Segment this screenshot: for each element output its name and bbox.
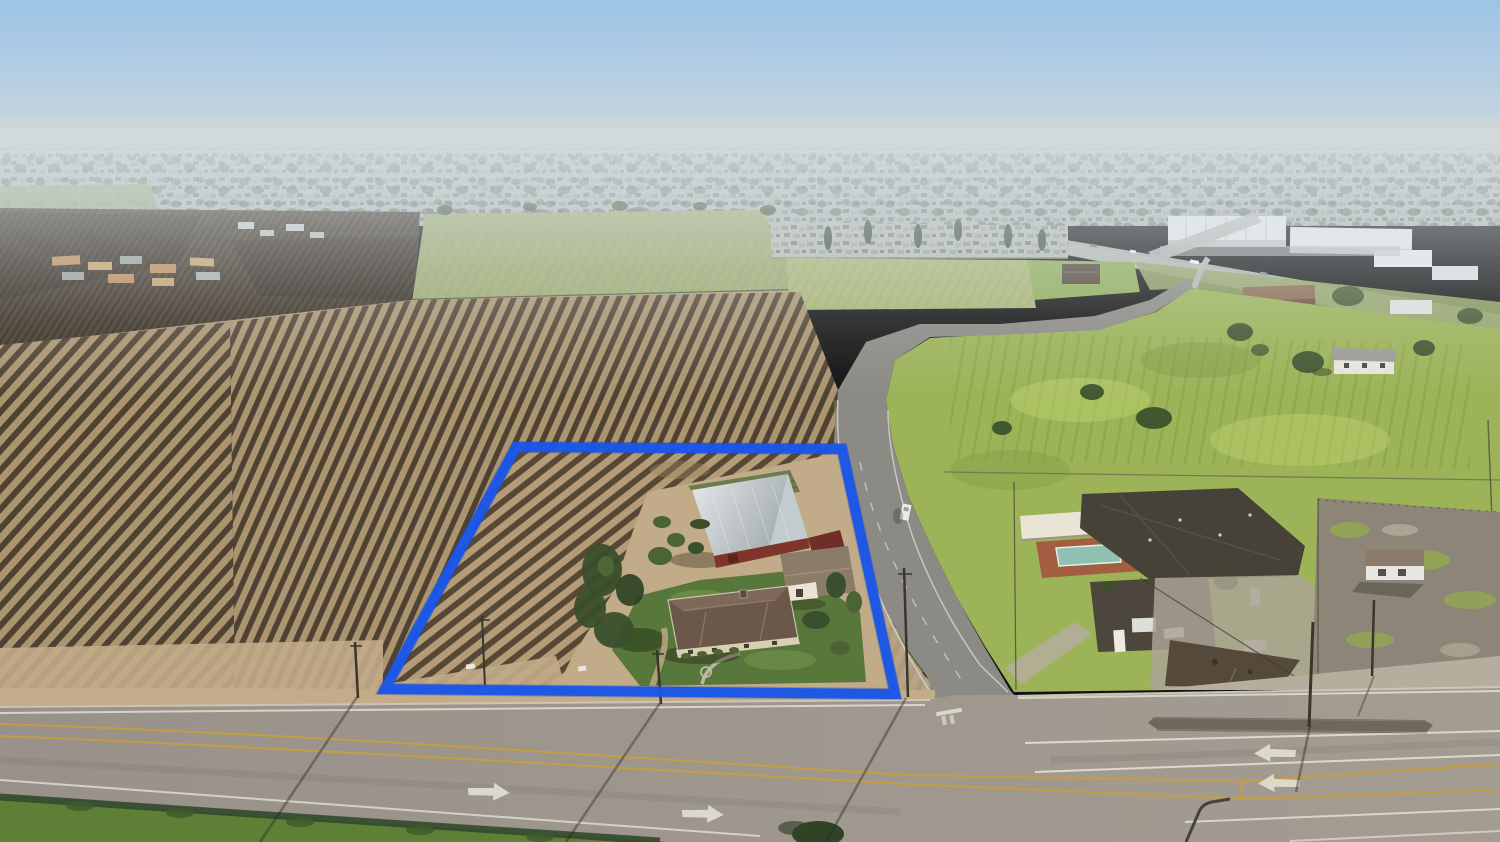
- vineyard-headland: [0, 640, 383, 695]
- garage-door: [1132, 618, 1156, 633]
- aerial-photo-canvas: [0, 0, 1500, 842]
- aerial-photo: [0, 0, 1500, 842]
- atmospheric-haze: [0, 128, 1500, 400]
- outbuilding-door: [796, 589, 803, 597]
- chimney: [740, 590, 747, 598]
- shed-wall: [1366, 566, 1424, 580]
- barn-door: [727, 553, 738, 564]
